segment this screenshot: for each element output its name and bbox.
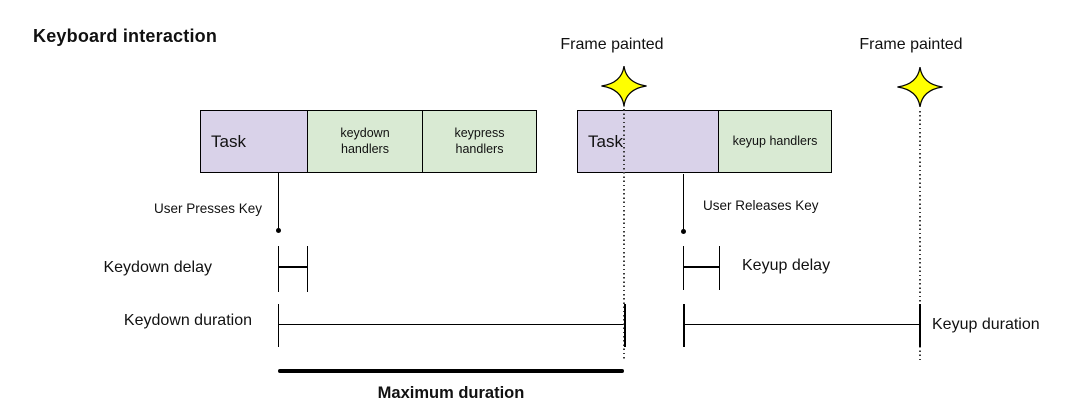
keydown-handlers-block: keydown handlers <box>307 110 423 173</box>
keyup-duration-label: Keyup duration <box>932 316 1040 334</box>
keydown-duration-label: Keydown duration <box>100 312 252 330</box>
task-label: Task <box>211 132 246 152</box>
task-label: Task <box>588 132 623 152</box>
keyup-delay-label: Keyup delay <box>742 257 830 275</box>
frame-painted-star-icon <box>894 63 946 111</box>
frame-painted-star-icon <box>598 62 650 110</box>
user-releases-key-label: User Releases Key <box>703 198 819 213</box>
keyup-handlers-label: keyup handlers <box>733 134 818 150</box>
maximum-duration-line <box>278 369 624 373</box>
keydown-delay-label: Keydown delay <box>60 259 212 277</box>
keydown-handlers-label: keydown handlers <box>326 126 404 157</box>
keyup-duration-start-tick <box>683 304 685 347</box>
user-presses-key-label: User Presses Key <box>126 201 262 216</box>
page-title: Keyboard interaction <box>33 26 217 47</box>
keyup-delay-bracket <box>683 246 720 290</box>
keydown-duration-start-tick <box>278 304 280 347</box>
keyup-duration-line <box>684 324 920 325</box>
keypress-handlers-label: keypress handlers <box>441 126 519 157</box>
keyboard-interaction-diagram: Keyboard interaction Frame painted Frame… <box>0 0 1080 420</box>
keyup-duration-end-tick <box>919 304 921 347</box>
maximum-duration-label: Maximum duration <box>351 384 551 403</box>
keydown-duration-line <box>278 324 625 325</box>
frame-painted-label-1: Frame painted <box>542 36 682 54</box>
release-event-line <box>683 174 685 229</box>
press-event-dot <box>276 228 281 233</box>
keyup-handlers-block: keyup handlers <box>718 110 832 173</box>
keydown-delay-bracket <box>278 246 308 292</box>
task-block-keydown: Task <box>200 110 308 173</box>
press-event-line <box>278 173 280 228</box>
keydown-duration-end-tick <box>624 304 626 347</box>
keypress-handlers-block: keypress handlers <box>422 110 537 173</box>
task-block-keyup: Task <box>577 110 719 173</box>
release-event-dot <box>681 229 686 234</box>
frame-painted-label-2: Frame painted <box>841 36 981 54</box>
